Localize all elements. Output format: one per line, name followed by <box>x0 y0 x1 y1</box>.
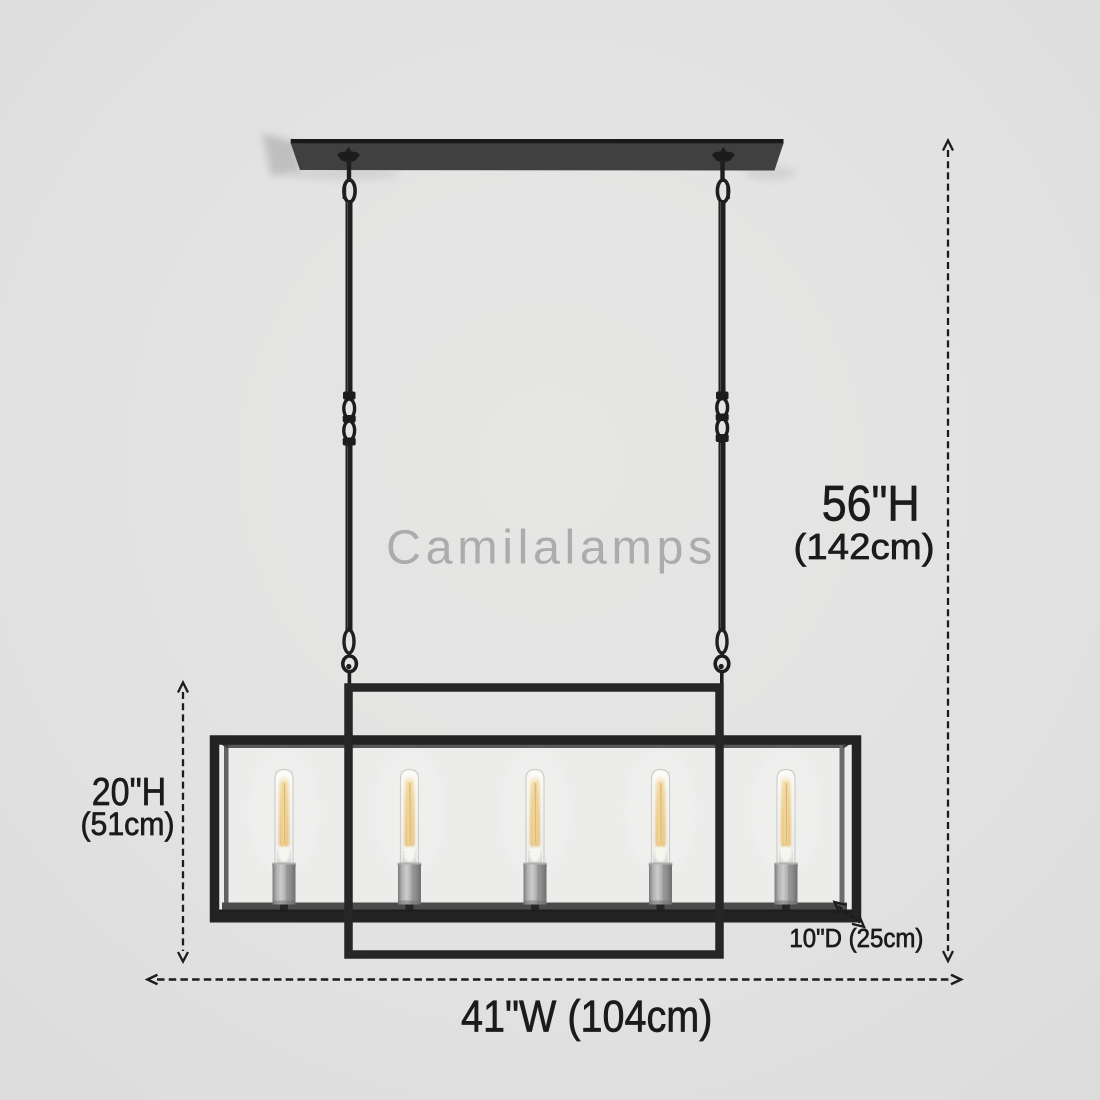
svg-text:Camilalamps: Camilalamps <box>386 521 717 575</box>
svg-text:56"H: 56"H <box>822 475 920 532</box>
svg-text:41"W (104cm): 41"W (104cm) <box>461 993 713 1042</box>
svg-text:(51cm): (51cm) <box>81 806 175 842</box>
svg-text:10"D (25cm): 10"D (25cm) <box>789 925 923 953</box>
svg-text:(142cm): (142cm) <box>794 526 935 567</box>
